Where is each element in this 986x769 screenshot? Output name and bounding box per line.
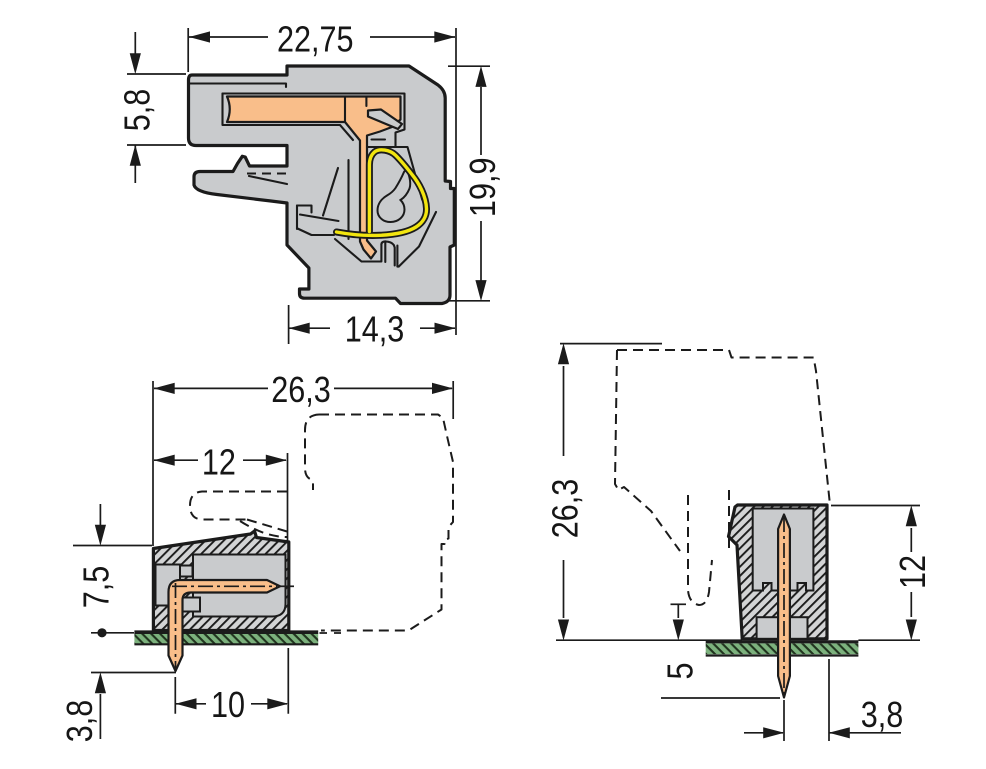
- svg-text:19,9: 19,9: [464, 158, 504, 218]
- svg-text:26,3: 26,3: [271, 371, 331, 411]
- svg-text:3,8: 3,8: [861, 696, 904, 736]
- svg-text:5,8: 5,8: [118, 89, 158, 132]
- svg-text:3,8: 3,8: [61, 700, 101, 743]
- svg-text:12: 12: [202, 443, 236, 483]
- svg-text:14,3: 14,3: [345, 310, 405, 350]
- svg-text:12: 12: [894, 555, 934, 589]
- svg-text:10: 10: [211, 686, 245, 726]
- svg-text:5: 5: [661, 662, 701, 679]
- svg-text:26,3: 26,3: [546, 479, 586, 539]
- svg-text:22,75: 22,75: [277, 20, 354, 60]
- svg-text:7,5: 7,5: [77, 566, 117, 609]
